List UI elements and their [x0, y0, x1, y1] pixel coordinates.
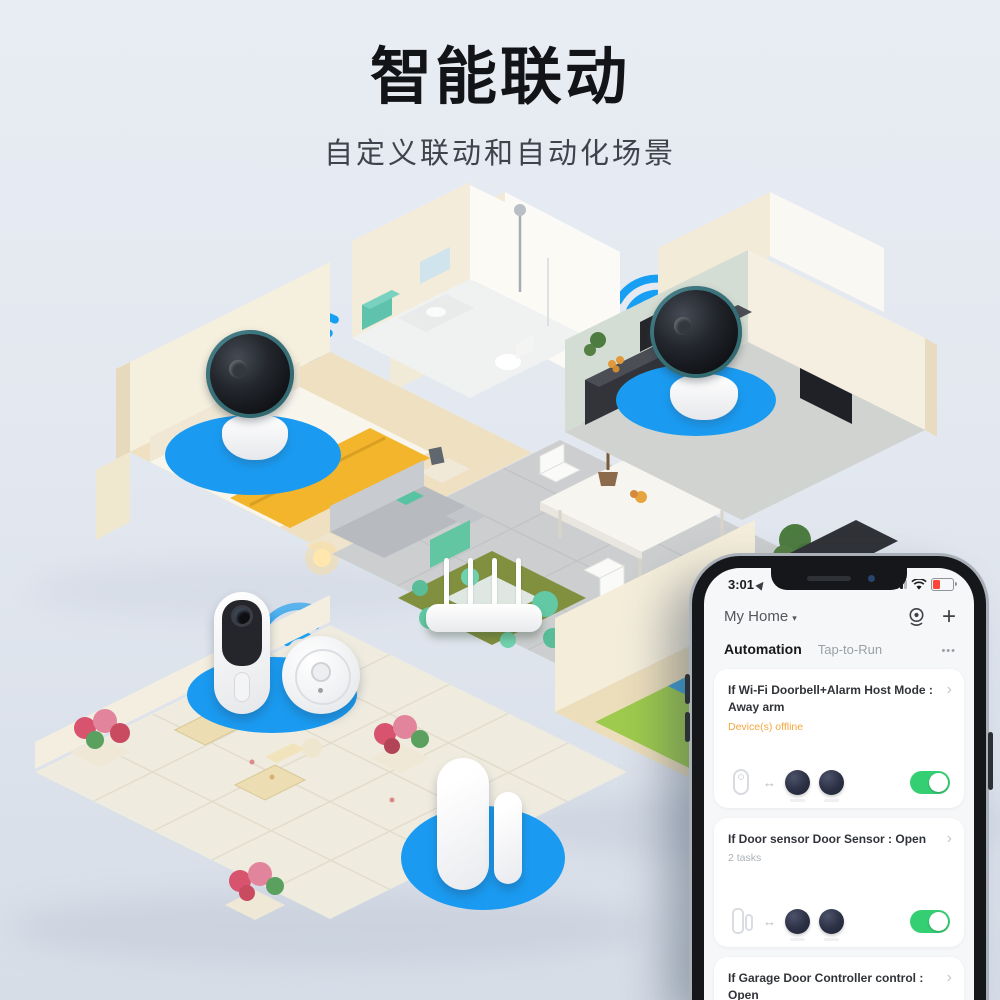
automation-title: If Garage Door Controller control : Open: [728, 970, 950, 1000]
camera-base: [670, 374, 738, 420]
linked-device-icon: [819, 909, 844, 934]
chevron-right-icon: ›: [947, 830, 952, 848]
security-camera-icon[interactable]: [907, 607, 926, 626]
link-arrow-icon: ↔: [763, 775, 776, 790]
door-sensor-magnet: [494, 792, 522, 884]
wifi-status-icon: [911, 579, 927, 591]
ptz-camera-left: [196, 330, 316, 480]
tab-automation[interactable]: Automation: [724, 641, 802, 657]
automation-title: If Door sensor Door Sensor : Open: [728, 831, 950, 848]
phone-screen: 3:01 My Home▾: [704, 568, 974, 1000]
doorbell-chime: [282, 636, 360, 714]
automation-title: If Wi-Fi Doorbell+Alarm Host Mode : Away…: [728, 682, 950, 717]
more-options-icon[interactable]: •••: [941, 645, 956, 657]
camera-head: [206, 330, 294, 418]
location-arrow-icon: [755, 579, 766, 590]
linked-device-icon: [785, 909, 810, 934]
ptz-camera-right: [642, 286, 762, 436]
link-arrow-icon: ↔: [763, 914, 776, 929]
app-header: My Home▾ +: [704, 592, 974, 626]
tab-bar: Automation Tap-to-Run •••: [704, 626, 974, 665]
camera-base: [222, 414, 288, 460]
automation-toggle[interactable]: [910, 910, 950, 933]
automation-card[interactable]: › If Garage Door Controller control : Op…: [714, 957, 964, 1000]
linked-device-icon: [819, 770, 844, 795]
chevron-down-icon: ▾: [792, 613, 797, 623]
linked-device-icon: [785, 770, 810, 795]
automation-toggle[interactable]: [910, 771, 950, 794]
door-sensor-main: [437, 758, 489, 890]
wifi-router: [426, 558, 546, 644]
phone-mockup: 3:01 My Home▾: [692, 556, 986, 1000]
automation-status: 2 tasks: [728, 852, 950, 864]
headline-block: 智能联动 自定义联动和自动化场景: [0, 26, 1000, 172]
automation-card[interactable]: › If Wi-Fi Doorbell+Alarm Host Mode : Aw…: [714, 669, 964, 808]
chevron-right-icon: ›: [947, 969, 952, 987]
volume-down-button: [685, 712, 690, 742]
page-title: 智能联动: [0, 26, 1000, 116]
door-sensor-icon: [728, 907, 754, 935]
video-doorbell: [214, 592, 270, 714]
doorbell-button: [234, 672, 250, 702]
add-button[interactable]: +: [942, 608, 956, 626]
power-button: [988, 732, 993, 790]
status-time: 3:01: [728, 577, 765, 592]
doorbell-icon: [728, 768, 754, 796]
automation-status: Device(s) offline: [728, 721, 950, 733]
home-selector[interactable]: My Home▾: [724, 608, 797, 625]
automation-list: › If Wi-Fi Doorbell+Alarm Host Mode : Aw…: [704, 665, 974, 1000]
camera-head: [650, 286, 742, 378]
front-camera-dot: [868, 575, 875, 582]
phone-notch: [771, 568, 907, 590]
doorbell-lens: [234, 608, 250, 624]
volume-up-button: [685, 674, 690, 704]
automation-card[interactable]: › If Door sensor Door Sensor : Open 2 ta…: [714, 818, 964, 947]
battery-icon: [931, 578, 954, 591]
page-subtitle: 自定义联动和自动化场景: [0, 130, 1000, 172]
speaker-slot: [807, 576, 851, 581]
chevron-right-icon: ›: [947, 681, 952, 699]
tab-tap-to-run[interactable]: Tap-to-Run: [818, 642, 882, 657]
bathroom: [352, 182, 590, 398]
